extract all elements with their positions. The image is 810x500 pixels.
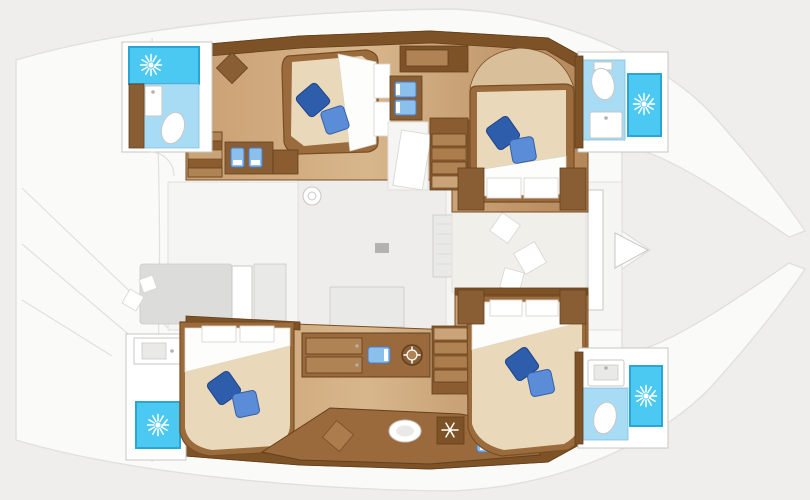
wardrobe-left: [458, 168, 484, 210]
galley-drawer-2: [306, 357, 362, 373]
bed-port-fwd: [470, 84, 574, 202]
shower-stall: [129, 47, 199, 84]
cooktop-dial-icon: [402, 345, 422, 365]
bed-port-aft: [282, 50, 378, 154]
starboard-stairs: [432, 326, 470, 394]
galley-counter: [302, 333, 430, 377]
pillow-light: [527, 369, 555, 397]
washbasin: [145, 86, 162, 116]
headboard-panel-2: [240, 326, 274, 342]
galley-round-basin: [389, 420, 421, 442]
freezer-snowflake-icon: [437, 417, 464, 444]
salon-aft-seat: [330, 287, 404, 327]
headboard-panel-1: [374, 64, 390, 98]
bed-stbd-aft: [180, 322, 294, 456]
companionway-cabinet-door: [406, 50, 448, 66]
port-forward-cabin: [458, 48, 586, 210]
washbasin: [134, 338, 182, 364]
headboard-panel-2: [526, 300, 558, 316]
salon-table: [232, 266, 252, 322]
salon-sofa: [140, 264, 232, 324]
vanity-seat-1: [231, 148, 244, 167]
port-forward-bathroom: [575, 52, 668, 152]
headboard-panel-1: [490, 300, 522, 316]
headboard-panel-1: [202, 326, 236, 342]
starboard-forward-bathroom: [575, 348, 668, 448]
washbasin: [588, 360, 624, 386]
bathroom-wall-strip: [575, 56, 583, 148]
bath-cabinet: [129, 84, 144, 148]
starboard-aft-washroom: [126, 334, 186, 460]
washbasin: [590, 112, 622, 138]
floorplan-canvas: [0, 0, 810, 500]
galley-drawer-1: [306, 338, 362, 354]
pillow-light: [232, 390, 260, 418]
foredeck-rail: [588, 190, 603, 310]
foot-panel-2: [524, 178, 558, 198]
wardrobe-right: [560, 168, 586, 210]
salon-table-base: [375, 243, 389, 253]
wardrobe-left: [458, 290, 484, 324]
starboard-aft-cabin: [180, 322, 294, 456]
foot-panel-1: [487, 178, 521, 198]
wardrobe-right: [560, 290, 586, 324]
starboard-forward-cabin: [458, 290, 586, 456]
pillow-light: [509, 136, 537, 164]
salon-seat-panel: [254, 264, 286, 324]
deck-hatch-icon: [303, 187, 321, 205]
step-block: [273, 150, 298, 174]
bathroom-wall-strip: [575, 352, 583, 444]
vanity-seat-2: [249, 148, 262, 167]
twin-sink-vanity: [390, 76, 422, 120]
catamaran-floorplan: [0, 0, 810, 500]
